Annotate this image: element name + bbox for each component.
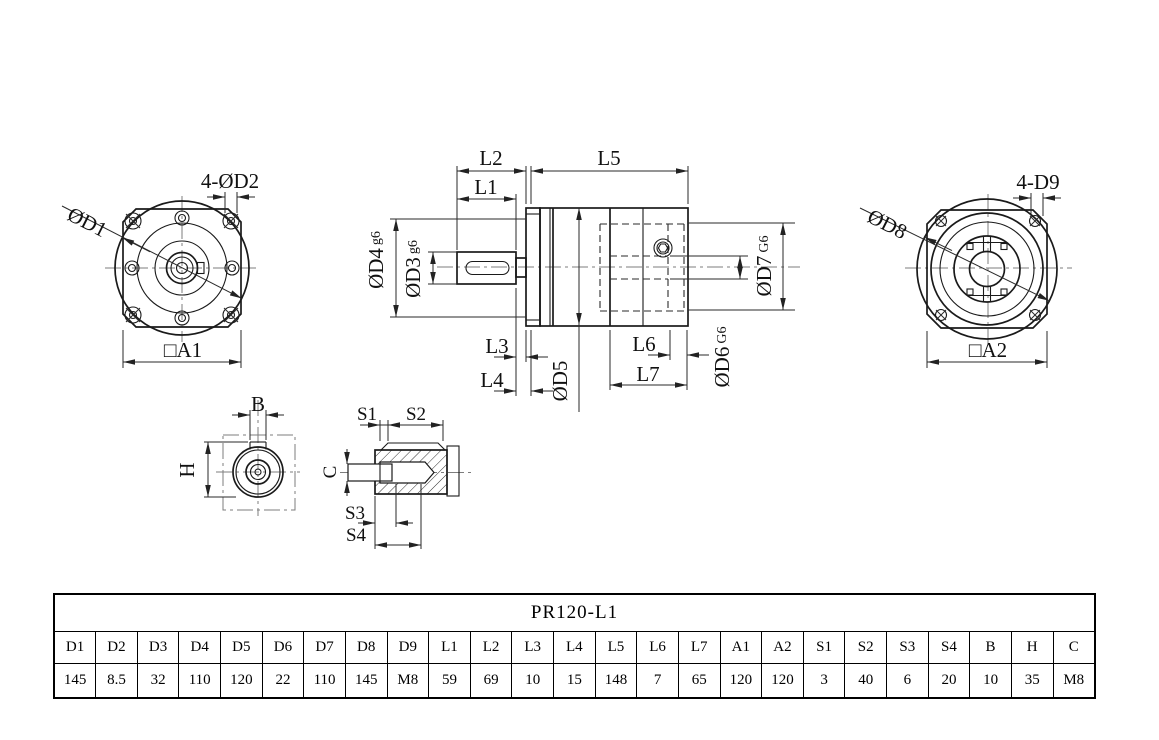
table-header-cell: S3 [887,632,929,664]
label-s1: S1 [357,404,377,425]
label-s2: S2 [406,404,426,425]
table-header-cell: C [1053,632,1095,664]
label-l2: L2 [479,146,502,170]
label-l5: L5 [597,146,620,170]
label-s4: S4 [346,525,367,546]
table-value-cell: 145 [54,664,96,699]
table-title-row: PR120-L1 [54,594,1095,632]
table-value-cell: 69 [470,664,512,699]
table-value-cell: 120 [762,664,804,699]
table-value-cell: 8.5 [96,664,138,699]
table-header-cell: D7 [304,632,346,664]
table-value-cell: 35 [1011,664,1053,699]
technical-drawing-page: ØD1 4-ØD2 □A1 [0,0,1159,740]
table-header-cell: D9 [387,632,429,664]
rear-view: ØD8 4-D9 □A2 [860,170,1072,368]
table-value-cell: 40 [845,664,887,699]
label-l4: L4 [480,368,504,392]
table-header-cell: D3 [137,632,179,664]
table-value-cell: 148 [595,664,637,699]
label-d1: ØD1 [64,202,111,242]
label-a2: □A2 [969,338,1007,362]
table-value-cell: 6 [887,664,929,699]
table-header-cell: B [970,632,1012,664]
table-value-cell: 3 [803,664,845,699]
table-header-cell: D1 [54,632,96,664]
table-header-cell: A1 [720,632,762,664]
socket-screw [654,239,672,257]
table-header-cell: L5 [595,632,637,664]
table-header-cell: D4 [179,632,221,664]
label-l3: L3 [485,334,508,358]
drawing-canvas: ØD1 4-ØD2 □A1 [0,0,1159,585]
label-d3: ØD3g6 [401,240,425,298]
table-header-cell: L3 [512,632,554,664]
table-title: PR120-L1 [54,594,1095,632]
label-s3: S3 [345,503,365,524]
table-value-cell: 10 [512,664,554,699]
table-value-cell: 10 [970,664,1012,699]
table-value-cell: 20 [928,664,970,699]
table-header-cell: H [1011,632,1053,664]
table-value-cell: 65 [678,664,720,699]
table-header-cell: D5 [221,632,263,664]
table-header-cell: A2 [762,632,804,664]
table-header-cell: D6 [262,632,304,664]
table-header-cell: L1 [429,632,471,664]
hub-section-detail-view: S1 S2 C S3 S4 [320,404,473,549]
table-header-cell: L6 [637,632,679,664]
table-value-cell: 120 [221,664,263,699]
label-h: H [175,462,199,477]
dimension-table: PR120-L1 D1D2D3D4D5D6D7D8D9L1L2L3L4L5L6L… [53,593,1096,699]
table-header-row: D1D2D3D4D5D6D7D8D9L1L2L3L4L5L6L7A1A2S1S2… [54,632,1095,664]
table-value-cell: 22 [262,664,304,699]
table-header-cell: L4 [554,632,596,664]
label-d6: ØD6G6 [710,327,734,388]
table-header-cell: S2 [845,632,887,664]
section-view: L2 L5 L1 L3 L4 L6 L7 ØD3g6 ØD4g6 [364,146,800,412]
label-d9: 4-D9 [1016,170,1059,194]
table-header-cell: L7 [678,632,720,664]
table-value-row: 1458.53211012022110145M85969101514876512… [54,664,1095,699]
label-l6: L6 [632,332,655,356]
table-header-cell: D2 [96,632,138,664]
label-b: B [251,392,265,416]
keyway-detail-view: B H [175,392,300,516]
front-view: ØD1 4-ØD2 □A1 [62,169,260,368]
table-value-cell: M8 [1053,664,1095,699]
label-d4: ØD4g6 [364,231,388,289]
table-value-cell: 110 [179,664,221,699]
label-c: C [320,466,341,479]
table-value-cell: 120 [720,664,762,699]
table-header-cell: S1 [803,632,845,664]
label-d7: ØD7G6 [752,236,776,297]
table-value-cell: 145 [345,664,387,699]
table-value-cell: M8 [387,664,429,699]
table-header-cell: D8 [345,632,387,664]
label-d8: ØD8 [864,204,911,244]
label-a1: □A1 [164,338,202,362]
table-value-cell: 32 [137,664,179,699]
table-header-cell: L2 [470,632,512,664]
table-value-cell: 59 [429,664,471,699]
label-d5: ØD5 [548,361,572,402]
table-value-cell: 15 [554,664,596,699]
label-l7: L7 [636,362,659,386]
table-value-cell: 7 [637,664,679,699]
label-l1: L1 [474,175,497,199]
table-header-cell: S4 [928,632,970,664]
label-d2: 4-ØD2 [201,169,259,193]
table-value-cell: 110 [304,664,346,699]
